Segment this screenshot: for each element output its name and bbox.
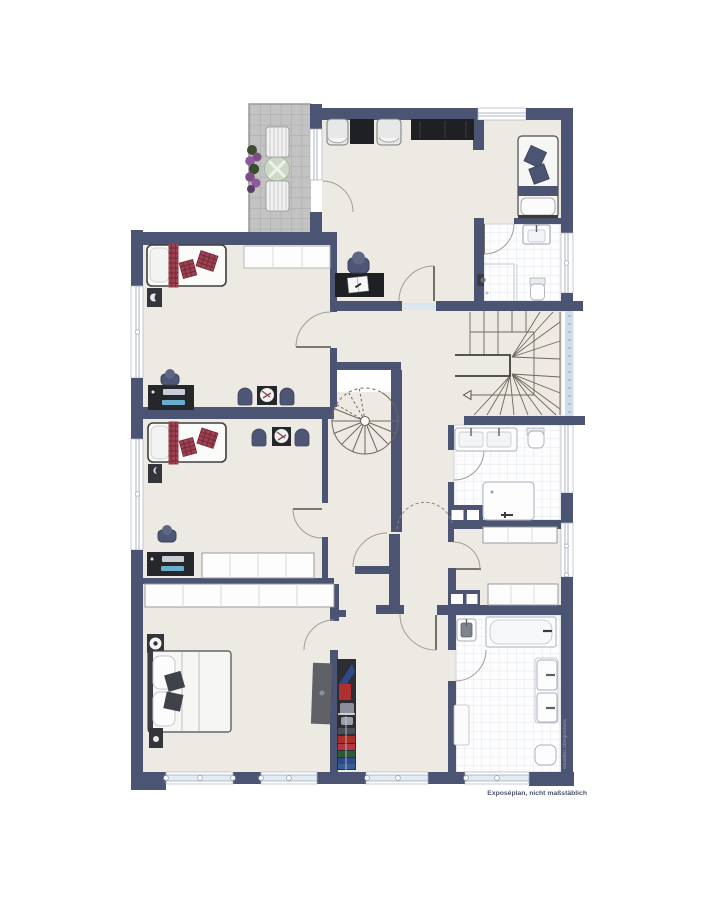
svg-text:Exposéplan, nicht maßstäblich: Exposéplan, nicht maßstäblich — [487, 790, 587, 797]
svg-text:Grundriss Obergeschoss: Grundriss Obergeschoss — [562, 718, 567, 769]
